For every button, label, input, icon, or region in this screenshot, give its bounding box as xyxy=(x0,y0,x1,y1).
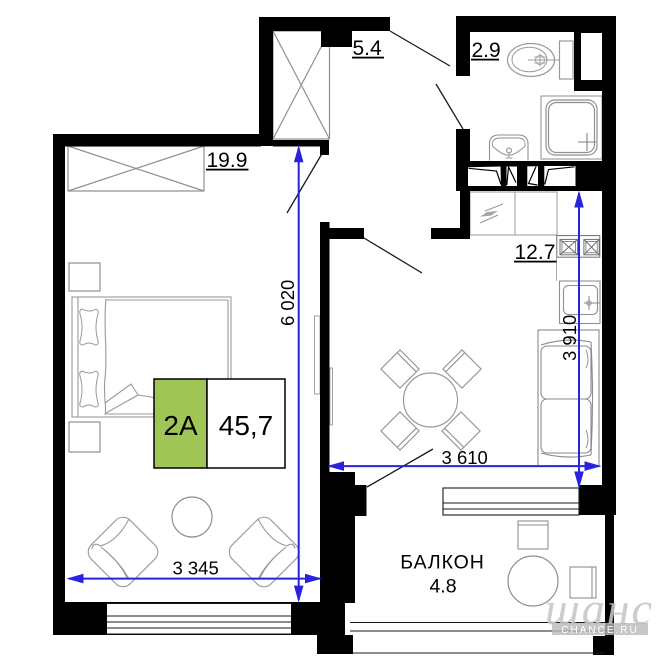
svg-text:4.8: 4.8 xyxy=(429,576,456,598)
svg-text:CHANCE.RU: CHANCE.RU xyxy=(561,625,638,636)
svg-text:5.4: 5.4 xyxy=(353,37,383,60)
svg-text:3 910: 3 910 xyxy=(559,315,580,361)
svg-text:19.9: 19.9 xyxy=(207,149,248,172)
svg-text:12.7: 12.7 xyxy=(515,241,556,264)
svg-text:45,7: 45,7 xyxy=(219,410,274,441)
svg-text:3 610: 3 610 xyxy=(442,447,488,468)
svg-text:3 345: 3 345 xyxy=(172,558,218,579)
svg-text:БАЛКОН: БАЛКОН xyxy=(400,552,484,574)
svg-text:2.9: 2.9 xyxy=(472,39,501,62)
svg-text:2A: 2A xyxy=(163,410,198,441)
svg-text:6 020: 6 020 xyxy=(277,280,298,326)
